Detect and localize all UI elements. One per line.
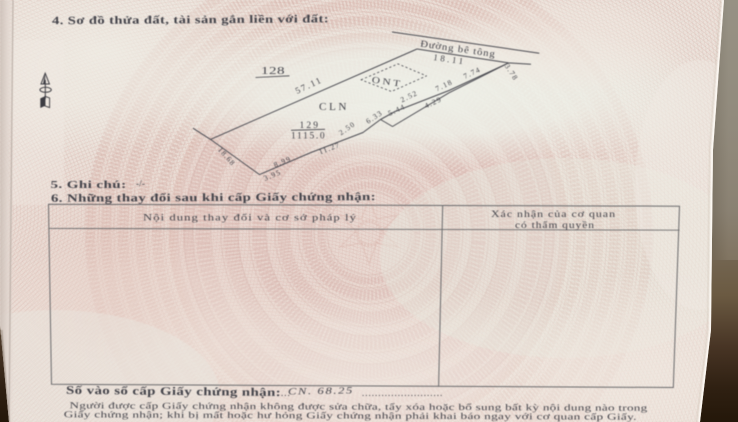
svg-text:có thẩm quyền: có thẩm quyền <box>515 220 595 231</box>
svg-text:Xác nhận của cơ quan: Xác nhận của cơ quan <box>491 210 616 220</box>
svg-text:128: 128 <box>261 66 285 77</box>
svg-text:-/-: -/- <box>136 180 145 190</box>
svg-text:CN. 68.25: CN. 68.25 <box>288 386 354 397</box>
svg-text:Nội dung thay đổi và cơ sở phá: Nội dung thay đổi và cơ sở pháp lý <box>143 213 357 224</box>
svg-text:6. Những thay đổi sau khi cấp: 6. Những thay đổi sau khi cấp Giấy chứng… <box>51 191 376 205</box>
svg-text:CLN: CLN <box>319 102 349 113</box>
svg-text:Số vào sổ cấp Giấy chứng nhận:: Số vào sổ cấp Giấy chứng nhận: <box>66 384 281 399</box>
svg-text:5. Ghi chú:: 5. Ghi chú: <box>51 179 127 191</box>
svg-text:4. Sơ đồ thửa đất, tài sản gắn: 4. Sơ đồ thửa đất, tài sản gắn liền với … <box>52 13 329 27</box>
svg-text:1115.0: 1115.0 <box>291 132 325 142</box>
svg-text:.........................: ......................... <box>362 388 443 398</box>
